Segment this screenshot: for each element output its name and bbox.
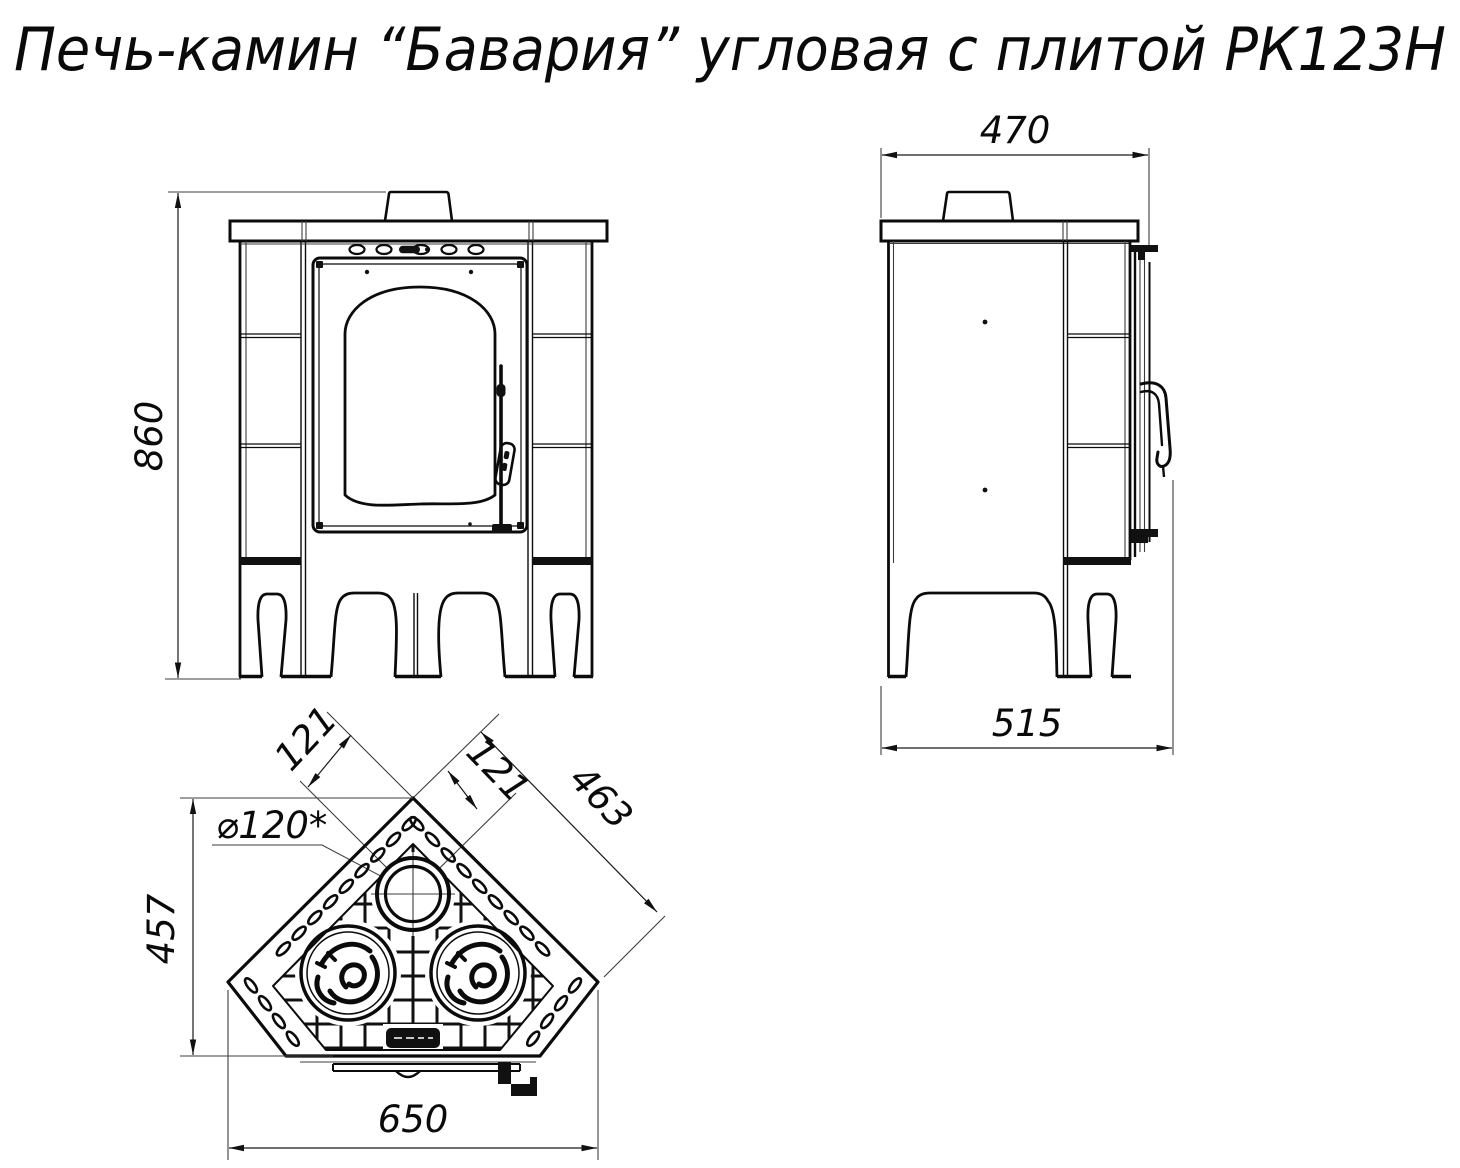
top-view: 457 650 463 121 121 ⌀120* bbox=[140, 698, 665, 1160]
left-column-sill bbox=[240, 557, 301, 565]
logo-plate bbox=[386, 1028, 440, 1048]
front-view: 860 bbox=[128, 192, 607, 679]
door-handle-grip bbox=[494, 442, 515, 486]
dim-457: 457 bbox=[140, 893, 183, 964]
side-legs bbox=[888, 593, 1131, 677]
dim-flue-diameter: ⌀120* bbox=[216, 804, 327, 847]
door-glass bbox=[345, 287, 495, 505]
front-legs bbox=[239, 593, 593, 677]
side-view: 470 bbox=[881, 109, 1173, 755]
fire-door bbox=[313, 258, 527, 533]
flue-collar-side bbox=[943, 192, 1013, 221]
dim-650: 650 bbox=[378, 1098, 449, 1141]
side-tile-dividers bbox=[1068, 334, 1130, 448]
dim-860: 860 bbox=[128, 401, 171, 472]
flue-collar-front bbox=[385, 192, 452, 221]
drawing-sheet: Печь-камин “Бавария” угловая с плитой РК… bbox=[0, 0, 1460, 1168]
dim-470: 470 bbox=[980, 109, 1051, 152]
top-door-latch bbox=[498, 1062, 537, 1096]
dim-515: 515 bbox=[992, 702, 1063, 745]
top-door bbox=[300, 1062, 537, 1096]
top-plate-front bbox=[230, 221, 607, 241]
left-tile-dividers bbox=[240, 334, 301, 448]
side-column-sill bbox=[1063, 557, 1131, 565]
page-title: Печь-камин “Бавария” угловая с плитой РК… bbox=[14, 15, 1446, 85]
right-tile-dividers bbox=[532, 334, 592, 448]
top-plate-side bbox=[881, 221, 1138, 241]
damper-handle bbox=[399, 246, 420, 253]
dim-121-left: 121 bbox=[266, 698, 346, 779]
vent-slots bbox=[350, 245, 484, 254]
technical-drawing: Печь-камин “Бавария” угловая с плитой РК… bbox=[0, 0, 1460, 1168]
right-column-sill bbox=[532, 557, 592, 565]
dim-line-121-right bbox=[448, 771, 477, 809]
door-edge bbox=[1131, 245, 1170, 557]
